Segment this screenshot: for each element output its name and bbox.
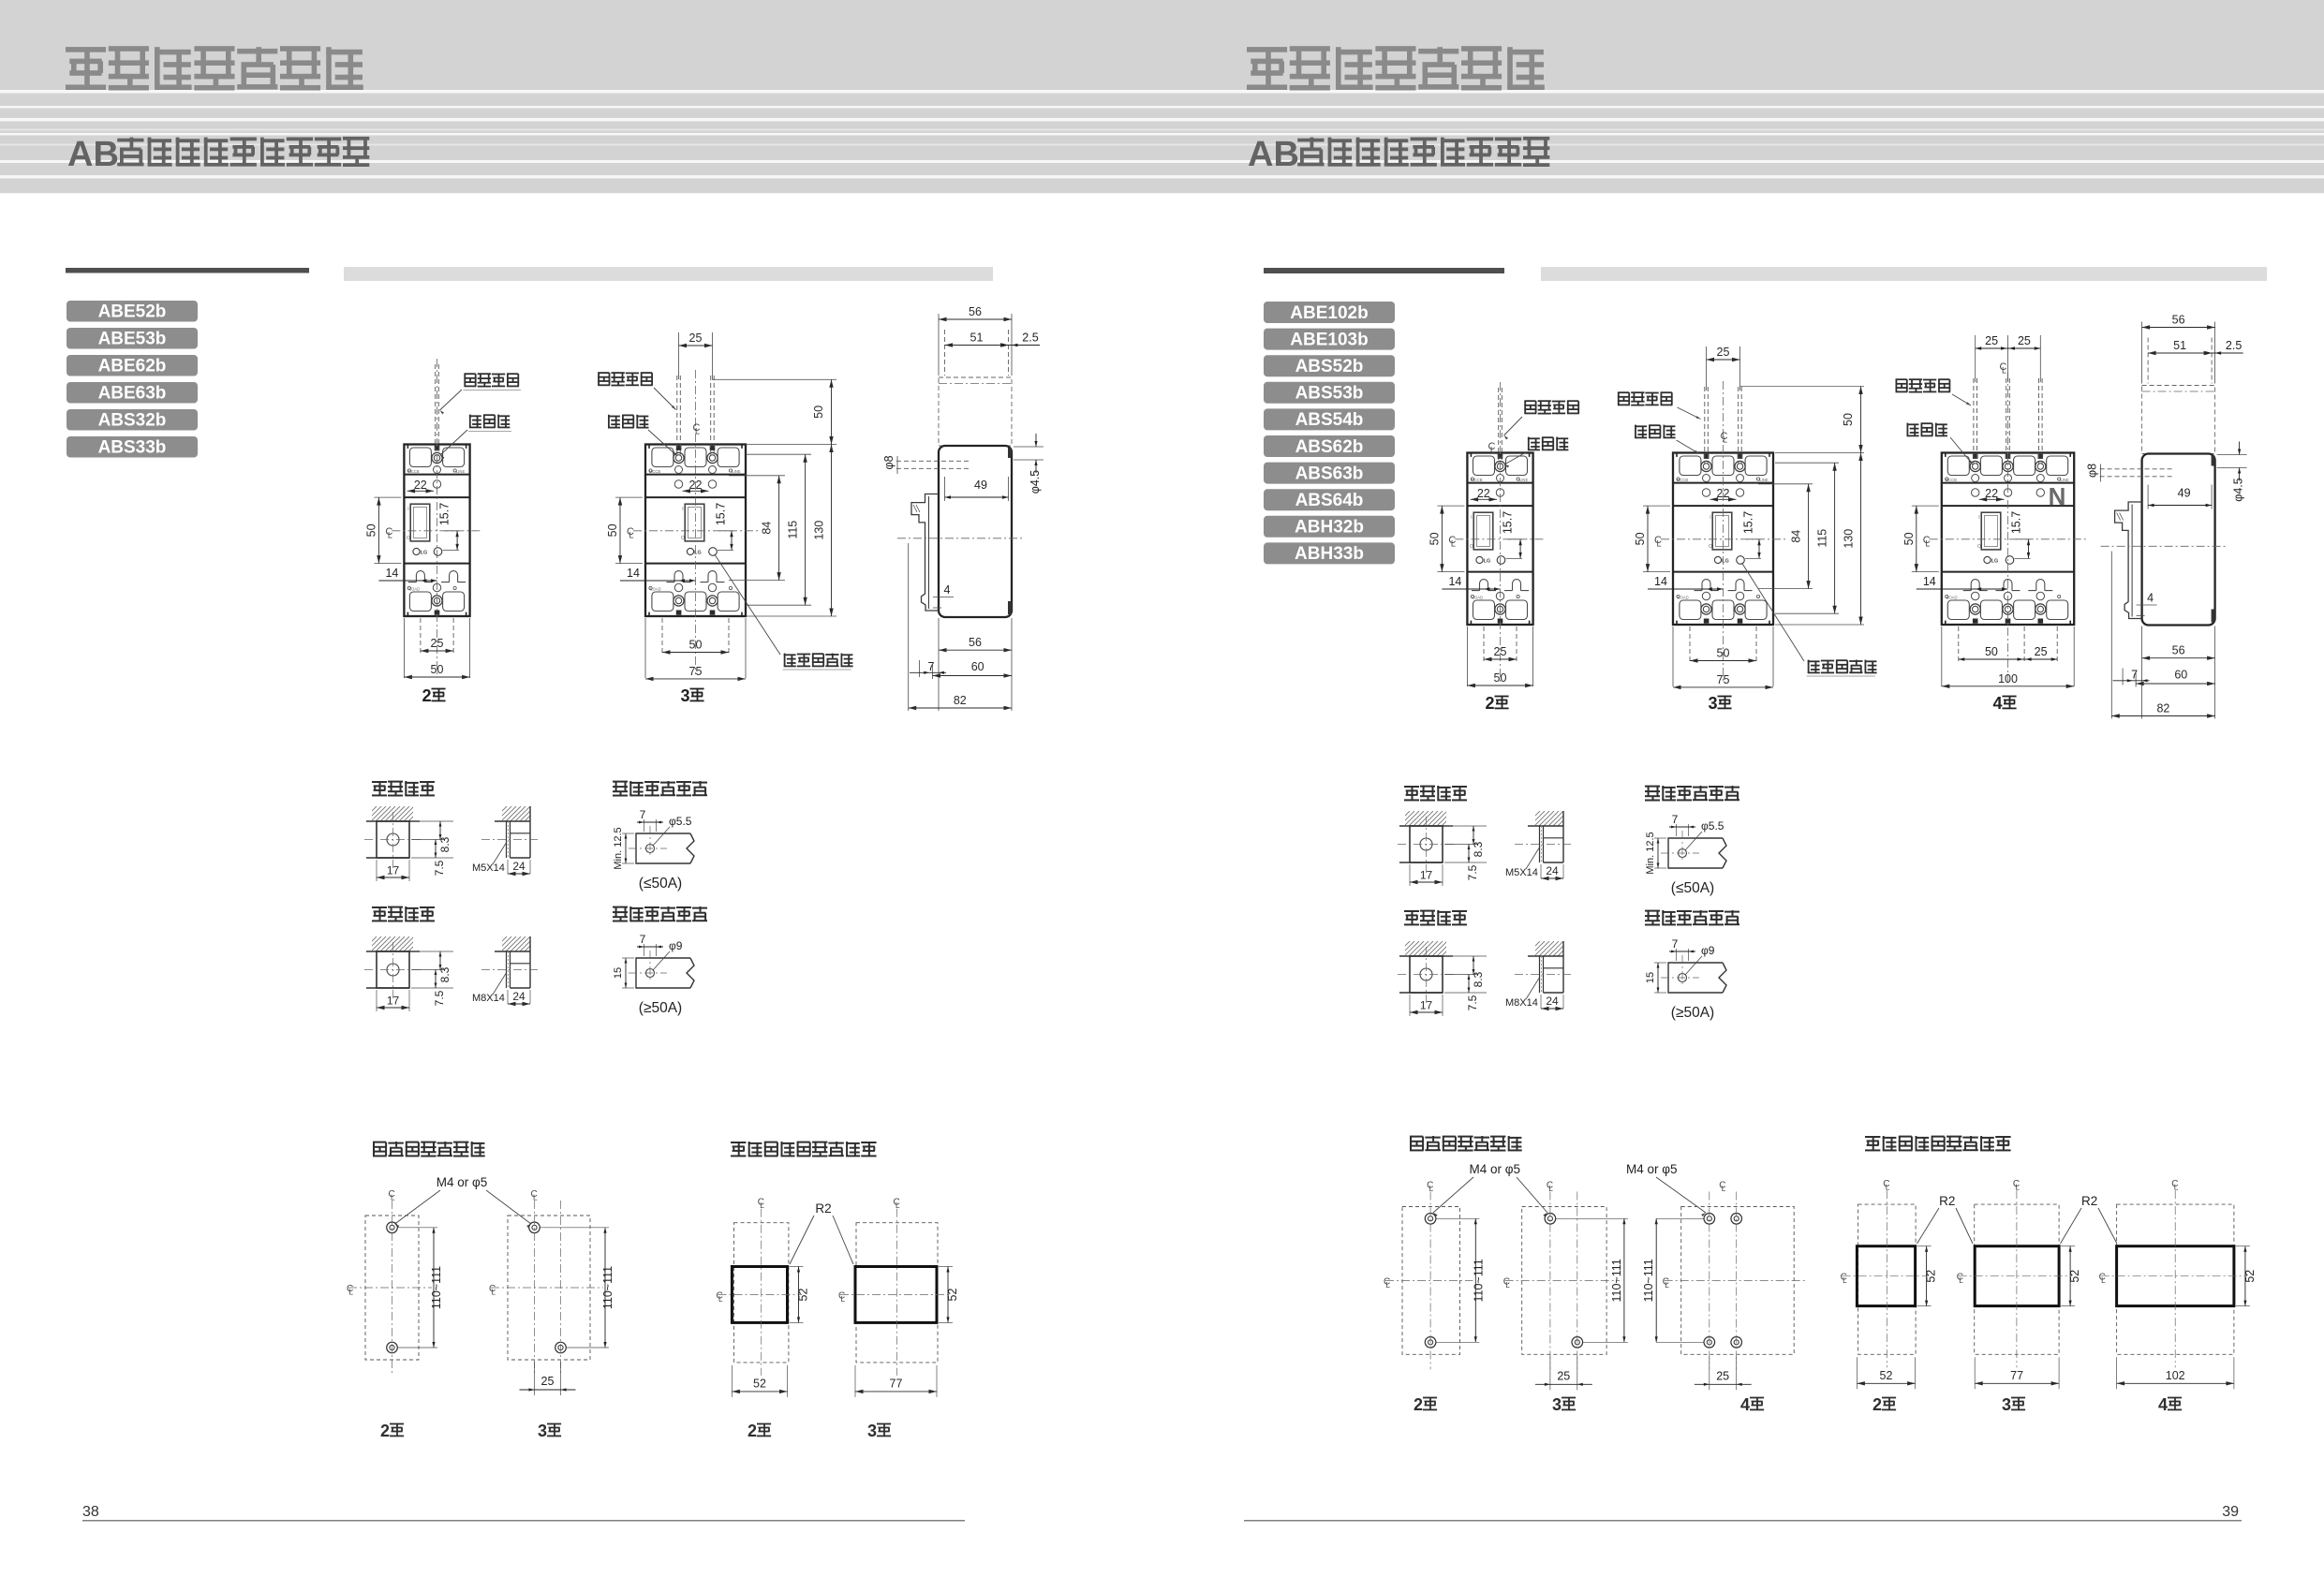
svg-text:MCCB: MCCB xyxy=(1677,478,1689,482)
svg-text:M4 or φ5: M4 or φ5 xyxy=(1626,1162,1678,1176)
svg-text:8.3: 8.3 xyxy=(1472,841,1485,857)
svg-text:Min. 12.5: Min. 12.5 xyxy=(613,827,624,869)
svg-text:(≤50A): (≤50A) xyxy=(639,876,682,892)
svg-text:φ4.5: φ4.5 xyxy=(1029,470,1042,494)
svg-text:ABS32b: ABS32b xyxy=(98,411,167,431)
svg-text:15: 15 xyxy=(613,967,624,979)
svg-text:50: 50 xyxy=(431,663,444,676)
svg-text:M8X14: M8X14 xyxy=(1505,997,1538,1009)
svg-text:L: L xyxy=(1723,435,1727,445)
svg-text:3: 3 xyxy=(538,1422,547,1440)
svg-text:ABS62b: ABS62b xyxy=(1295,437,1364,457)
svg-text:ABS64b: ABS64b xyxy=(1295,491,1364,510)
svg-text:ABS52b: ABS52b xyxy=(1295,357,1364,376)
svg-text:4: 4 xyxy=(944,583,951,597)
svg-text:φ9: φ9 xyxy=(1701,944,1715,957)
svg-text:L: L xyxy=(388,531,392,540)
svg-text:L: L xyxy=(896,1201,900,1210)
svg-text:φ8: φ8 xyxy=(2086,464,2099,478)
svg-text:AB: AB xyxy=(67,135,119,174)
svg-text:52: 52 xyxy=(797,1289,810,1302)
svg-text:82: 82 xyxy=(954,694,967,707)
svg-text:24: 24 xyxy=(512,860,525,873)
svg-text:77: 77 xyxy=(890,1377,903,1390)
svg-text:52: 52 xyxy=(2068,1270,2081,1283)
svg-text:O: O xyxy=(681,536,685,541)
svg-text:50: 50 xyxy=(1428,532,1441,545)
svg-text:LINE: LINE xyxy=(732,469,741,474)
svg-text:L: L xyxy=(1925,539,1930,549)
svg-text:50: 50 xyxy=(1842,413,1855,426)
svg-text:L: L xyxy=(1548,1185,1553,1193)
svg-text:14: 14 xyxy=(1448,575,1461,588)
svg-text:I: I xyxy=(1471,515,1472,521)
svg-text:15.7: 15.7 xyxy=(438,503,451,525)
svg-text:L: L xyxy=(533,1194,538,1202)
svg-text:17: 17 xyxy=(387,864,400,877)
svg-text:O: O xyxy=(407,536,410,541)
svg-text:7.5: 7.5 xyxy=(433,860,446,876)
svg-text:M5X14: M5X14 xyxy=(1505,867,1538,878)
svg-text:LINE: LINE xyxy=(456,469,466,474)
svg-text:MCCB: MCCB xyxy=(407,469,420,474)
svg-text:M4 or φ5: M4 or φ5 xyxy=(1470,1162,1521,1176)
svg-text:I: I xyxy=(1710,515,1710,521)
svg-text:7.5: 7.5 xyxy=(1466,995,1479,1010)
svg-text:LG: LG xyxy=(1484,559,1491,565)
svg-text:17: 17 xyxy=(1420,999,1433,1012)
svg-text:50: 50 xyxy=(606,523,619,537)
svg-text:24: 24 xyxy=(1546,995,1559,1008)
svg-text:ABE103b: ABE103b xyxy=(1290,330,1368,349)
svg-text:2.5: 2.5 xyxy=(1022,332,1038,345)
svg-text:7.5: 7.5 xyxy=(433,990,446,1006)
svg-text:7: 7 xyxy=(928,660,935,673)
svg-text:100: 100 xyxy=(1998,672,2018,685)
svg-text:LG: LG xyxy=(421,551,428,556)
svg-text:φ8: φ8 xyxy=(882,455,896,469)
svg-text:L: L xyxy=(1505,1281,1510,1290)
svg-text:25: 25 xyxy=(1716,1369,1729,1382)
svg-text:130: 130 xyxy=(813,521,826,540)
svg-text:7: 7 xyxy=(2131,669,2138,682)
svg-text:4: 4 xyxy=(1993,694,2003,713)
svg-text:(≥50A): (≥50A) xyxy=(639,1000,682,1016)
svg-text:I: I xyxy=(407,507,408,512)
svg-text:2: 2 xyxy=(1414,1395,1423,1414)
svg-text:15.7: 15.7 xyxy=(1502,511,1515,534)
svg-text:25: 25 xyxy=(689,332,703,345)
svg-text:L: L xyxy=(841,1295,846,1304)
svg-text:LINE: LINE xyxy=(1759,478,1769,482)
svg-text:75: 75 xyxy=(689,665,703,678)
svg-text:50: 50 xyxy=(1634,532,1647,545)
svg-text:15.7: 15.7 xyxy=(1742,511,1755,534)
svg-text:24: 24 xyxy=(512,990,525,1003)
svg-text:O: O xyxy=(1709,544,1712,550)
svg-text:110~111: 110~111 xyxy=(1610,1259,1623,1302)
svg-text:60: 60 xyxy=(971,660,984,673)
svg-text:L: L xyxy=(391,1194,395,1202)
svg-text:L: L xyxy=(1451,539,1456,549)
svg-text:15.7: 15.7 xyxy=(2010,511,2023,534)
svg-text:φ9: φ9 xyxy=(669,939,683,952)
svg-text:L: L xyxy=(629,531,634,540)
svg-text:25: 25 xyxy=(541,1375,555,1388)
svg-text:3: 3 xyxy=(2002,1395,2011,1414)
svg-text:39: 39 xyxy=(2222,1504,2239,1520)
svg-text:56: 56 xyxy=(969,305,982,318)
svg-text:2: 2 xyxy=(380,1422,390,1440)
svg-text:7: 7 xyxy=(640,808,646,821)
svg-text:φ5.5: φ5.5 xyxy=(1701,819,1724,833)
svg-text:I: I xyxy=(682,507,683,512)
svg-text:49: 49 xyxy=(2178,487,2191,500)
svg-text:MCCB: MCCB xyxy=(1946,478,1958,482)
svg-text:ABS54b: ABS54b xyxy=(1295,410,1364,430)
svg-text:17: 17 xyxy=(1420,869,1433,882)
svg-text:102: 102 xyxy=(2166,1369,2185,1382)
svg-text:50: 50 xyxy=(812,405,825,419)
svg-text:60: 60 xyxy=(2174,669,2187,682)
svg-text:110~111: 110~111 xyxy=(1642,1259,1655,1302)
svg-text:110~111: 110~111 xyxy=(1472,1259,1485,1302)
svg-text:ABH32b: ABH32b xyxy=(1295,518,1364,538)
svg-text:56: 56 xyxy=(2172,314,2185,327)
svg-text:25: 25 xyxy=(1557,1369,1570,1382)
svg-text:49: 49 xyxy=(974,479,987,492)
svg-text:L: L xyxy=(492,1289,496,1297)
svg-text:Min. 12.5: Min. 12.5 xyxy=(1645,832,1656,874)
svg-text:38: 38 xyxy=(82,1504,99,1520)
svg-text:52: 52 xyxy=(753,1377,766,1390)
svg-text:3: 3 xyxy=(867,1422,877,1440)
svg-text:14: 14 xyxy=(385,567,398,580)
svg-text:50: 50 xyxy=(1717,647,1730,660)
svg-text:7: 7 xyxy=(640,933,646,946)
svg-text:ABE62b: ABE62b xyxy=(98,357,167,376)
svg-text:ABE53b: ABE53b xyxy=(98,330,167,349)
svg-text:L: L xyxy=(760,1201,764,1210)
svg-text:14: 14 xyxy=(1654,575,1667,588)
svg-text:56: 56 xyxy=(969,636,982,649)
svg-text:4: 4 xyxy=(2147,592,2154,605)
svg-text:77: 77 xyxy=(2010,1369,2023,1382)
svg-text:15.7: 15.7 xyxy=(715,503,728,525)
svg-text:ABS53b: ABS53b xyxy=(1295,384,1364,404)
svg-text:ABE63b: ABE63b xyxy=(98,384,167,404)
svg-text:ABE52b: ABE52b xyxy=(98,302,167,322)
svg-text:L: L xyxy=(1959,1276,1963,1285)
svg-text:51: 51 xyxy=(2173,339,2186,352)
svg-text:17: 17 xyxy=(387,995,400,1008)
svg-text:115: 115 xyxy=(787,521,800,539)
svg-text:22: 22 xyxy=(1477,487,1490,500)
svg-text:2: 2 xyxy=(1486,694,1495,713)
svg-text:LG: LG xyxy=(1991,559,1999,565)
svg-text:L: L xyxy=(1886,1184,1890,1192)
svg-text:82: 82 xyxy=(2156,702,2169,715)
svg-text:8.3: 8.3 xyxy=(438,836,451,852)
svg-text:R2: R2 xyxy=(2081,1194,2097,1208)
svg-text:(≥50A): (≥50A) xyxy=(1671,1005,1714,1021)
svg-text:L: L xyxy=(349,1289,354,1297)
svg-text:56: 56 xyxy=(2172,644,2185,657)
svg-text:φ4.5: φ4.5 xyxy=(2232,478,2245,502)
svg-text:14: 14 xyxy=(1923,575,1936,588)
svg-text:AB: AB xyxy=(1248,135,1299,174)
svg-text:O: O xyxy=(1470,544,1473,550)
svg-text:50: 50 xyxy=(689,639,703,652)
svg-text:M5X14: M5X14 xyxy=(472,862,505,874)
svg-text:84: 84 xyxy=(1790,530,1803,543)
svg-text:ABH33b: ABH33b xyxy=(1295,544,1364,564)
svg-text:L: L xyxy=(2015,1184,2020,1192)
svg-text:2.5: 2.5 xyxy=(2226,339,2242,352)
svg-text:2: 2 xyxy=(748,1422,757,1440)
svg-text:L: L xyxy=(2002,366,2006,376)
svg-text:(≤50A): (≤50A) xyxy=(1671,880,1714,896)
svg-text:25: 25 xyxy=(1985,334,1998,347)
svg-text:L: L xyxy=(1490,446,1495,455)
svg-text:75: 75 xyxy=(1717,673,1730,686)
svg-text:4: 4 xyxy=(2158,1395,2168,1414)
svg-text:ABE102b: ABE102b xyxy=(1290,303,1368,323)
svg-text:22: 22 xyxy=(1985,487,1998,500)
svg-text:R2: R2 xyxy=(1939,1194,1955,1208)
svg-text:MCCB: MCCB xyxy=(1471,478,1483,482)
svg-text:4: 4 xyxy=(1740,1395,1750,1414)
svg-text:M4 or φ5: M4 or φ5 xyxy=(437,1175,488,1189)
svg-text:φ5.5: φ5.5 xyxy=(669,815,692,828)
svg-text:O: O xyxy=(1977,544,1981,550)
svg-text:24: 24 xyxy=(1546,864,1559,877)
svg-text:50: 50 xyxy=(1494,671,1507,685)
svg-text:52: 52 xyxy=(2243,1270,2257,1283)
svg-text:7: 7 xyxy=(1672,813,1679,826)
svg-text:L: L xyxy=(718,1295,723,1304)
svg-text:84: 84 xyxy=(761,522,774,535)
svg-text:14: 14 xyxy=(627,567,640,580)
svg-text:R2: R2 xyxy=(815,1201,831,1216)
svg-text:MCCB: MCCB xyxy=(649,469,661,474)
svg-text:M8X14: M8X14 xyxy=(472,993,505,1004)
svg-text:51: 51 xyxy=(970,332,984,345)
svg-text:52: 52 xyxy=(1925,1270,1938,1283)
svg-text:115: 115 xyxy=(1816,529,1829,548)
svg-text:3: 3 xyxy=(681,686,690,705)
svg-text:L: L xyxy=(1657,539,1662,549)
svg-text:22: 22 xyxy=(414,479,427,492)
svg-text:25: 25 xyxy=(1494,645,1507,658)
svg-text:I: I xyxy=(1978,515,1979,521)
svg-text:L: L xyxy=(2174,1184,2179,1192)
svg-text:25: 25 xyxy=(2018,334,2031,347)
svg-text:8.3: 8.3 xyxy=(1472,971,1485,987)
svg-text:25: 25 xyxy=(1717,346,1730,359)
svg-text:LINE: LINE xyxy=(1519,478,1529,482)
svg-text:7.5: 7.5 xyxy=(1466,864,1479,880)
svg-text:7: 7 xyxy=(1672,937,1679,951)
svg-text:50: 50 xyxy=(1902,532,1916,545)
svg-text:L: L xyxy=(2101,1276,2106,1285)
svg-text:ABS63b: ABS63b xyxy=(1295,464,1364,483)
svg-text:L: L xyxy=(1429,1185,1434,1193)
svg-text:L: L xyxy=(695,427,700,436)
svg-text:N: N xyxy=(2049,482,2066,510)
svg-text:52: 52 xyxy=(1880,1369,1893,1382)
svg-text:L: L xyxy=(1386,1281,1391,1290)
svg-text:130: 130 xyxy=(1843,529,1856,549)
svg-text:ABS33b: ABS33b xyxy=(98,438,167,458)
svg-text:52: 52 xyxy=(946,1289,959,1302)
svg-text:L: L xyxy=(1843,1276,1847,1285)
svg-text:110~111: 110~111 xyxy=(430,1266,443,1309)
svg-text:110~111: 110~111 xyxy=(601,1266,614,1309)
svg-text:50: 50 xyxy=(364,523,377,537)
svg-text:8.3: 8.3 xyxy=(438,966,451,982)
svg-text:50: 50 xyxy=(1985,645,1998,658)
svg-text:3: 3 xyxy=(1709,694,1718,713)
svg-text:2: 2 xyxy=(1873,1395,1882,1414)
svg-text:15: 15 xyxy=(1645,972,1656,983)
svg-text:L: L xyxy=(1722,1185,1726,1193)
svg-text:2: 2 xyxy=(422,686,432,705)
svg-text:25: 25 xyxy=(2035,645,2048,658)
svg-text:25: 25 xyxy=(431,637,444,650)
svg-text:L: L xyxy=(1665,1281,1669,1290)
svg-text:3: 3 xyxy=(1552,1395,1562,1414)
